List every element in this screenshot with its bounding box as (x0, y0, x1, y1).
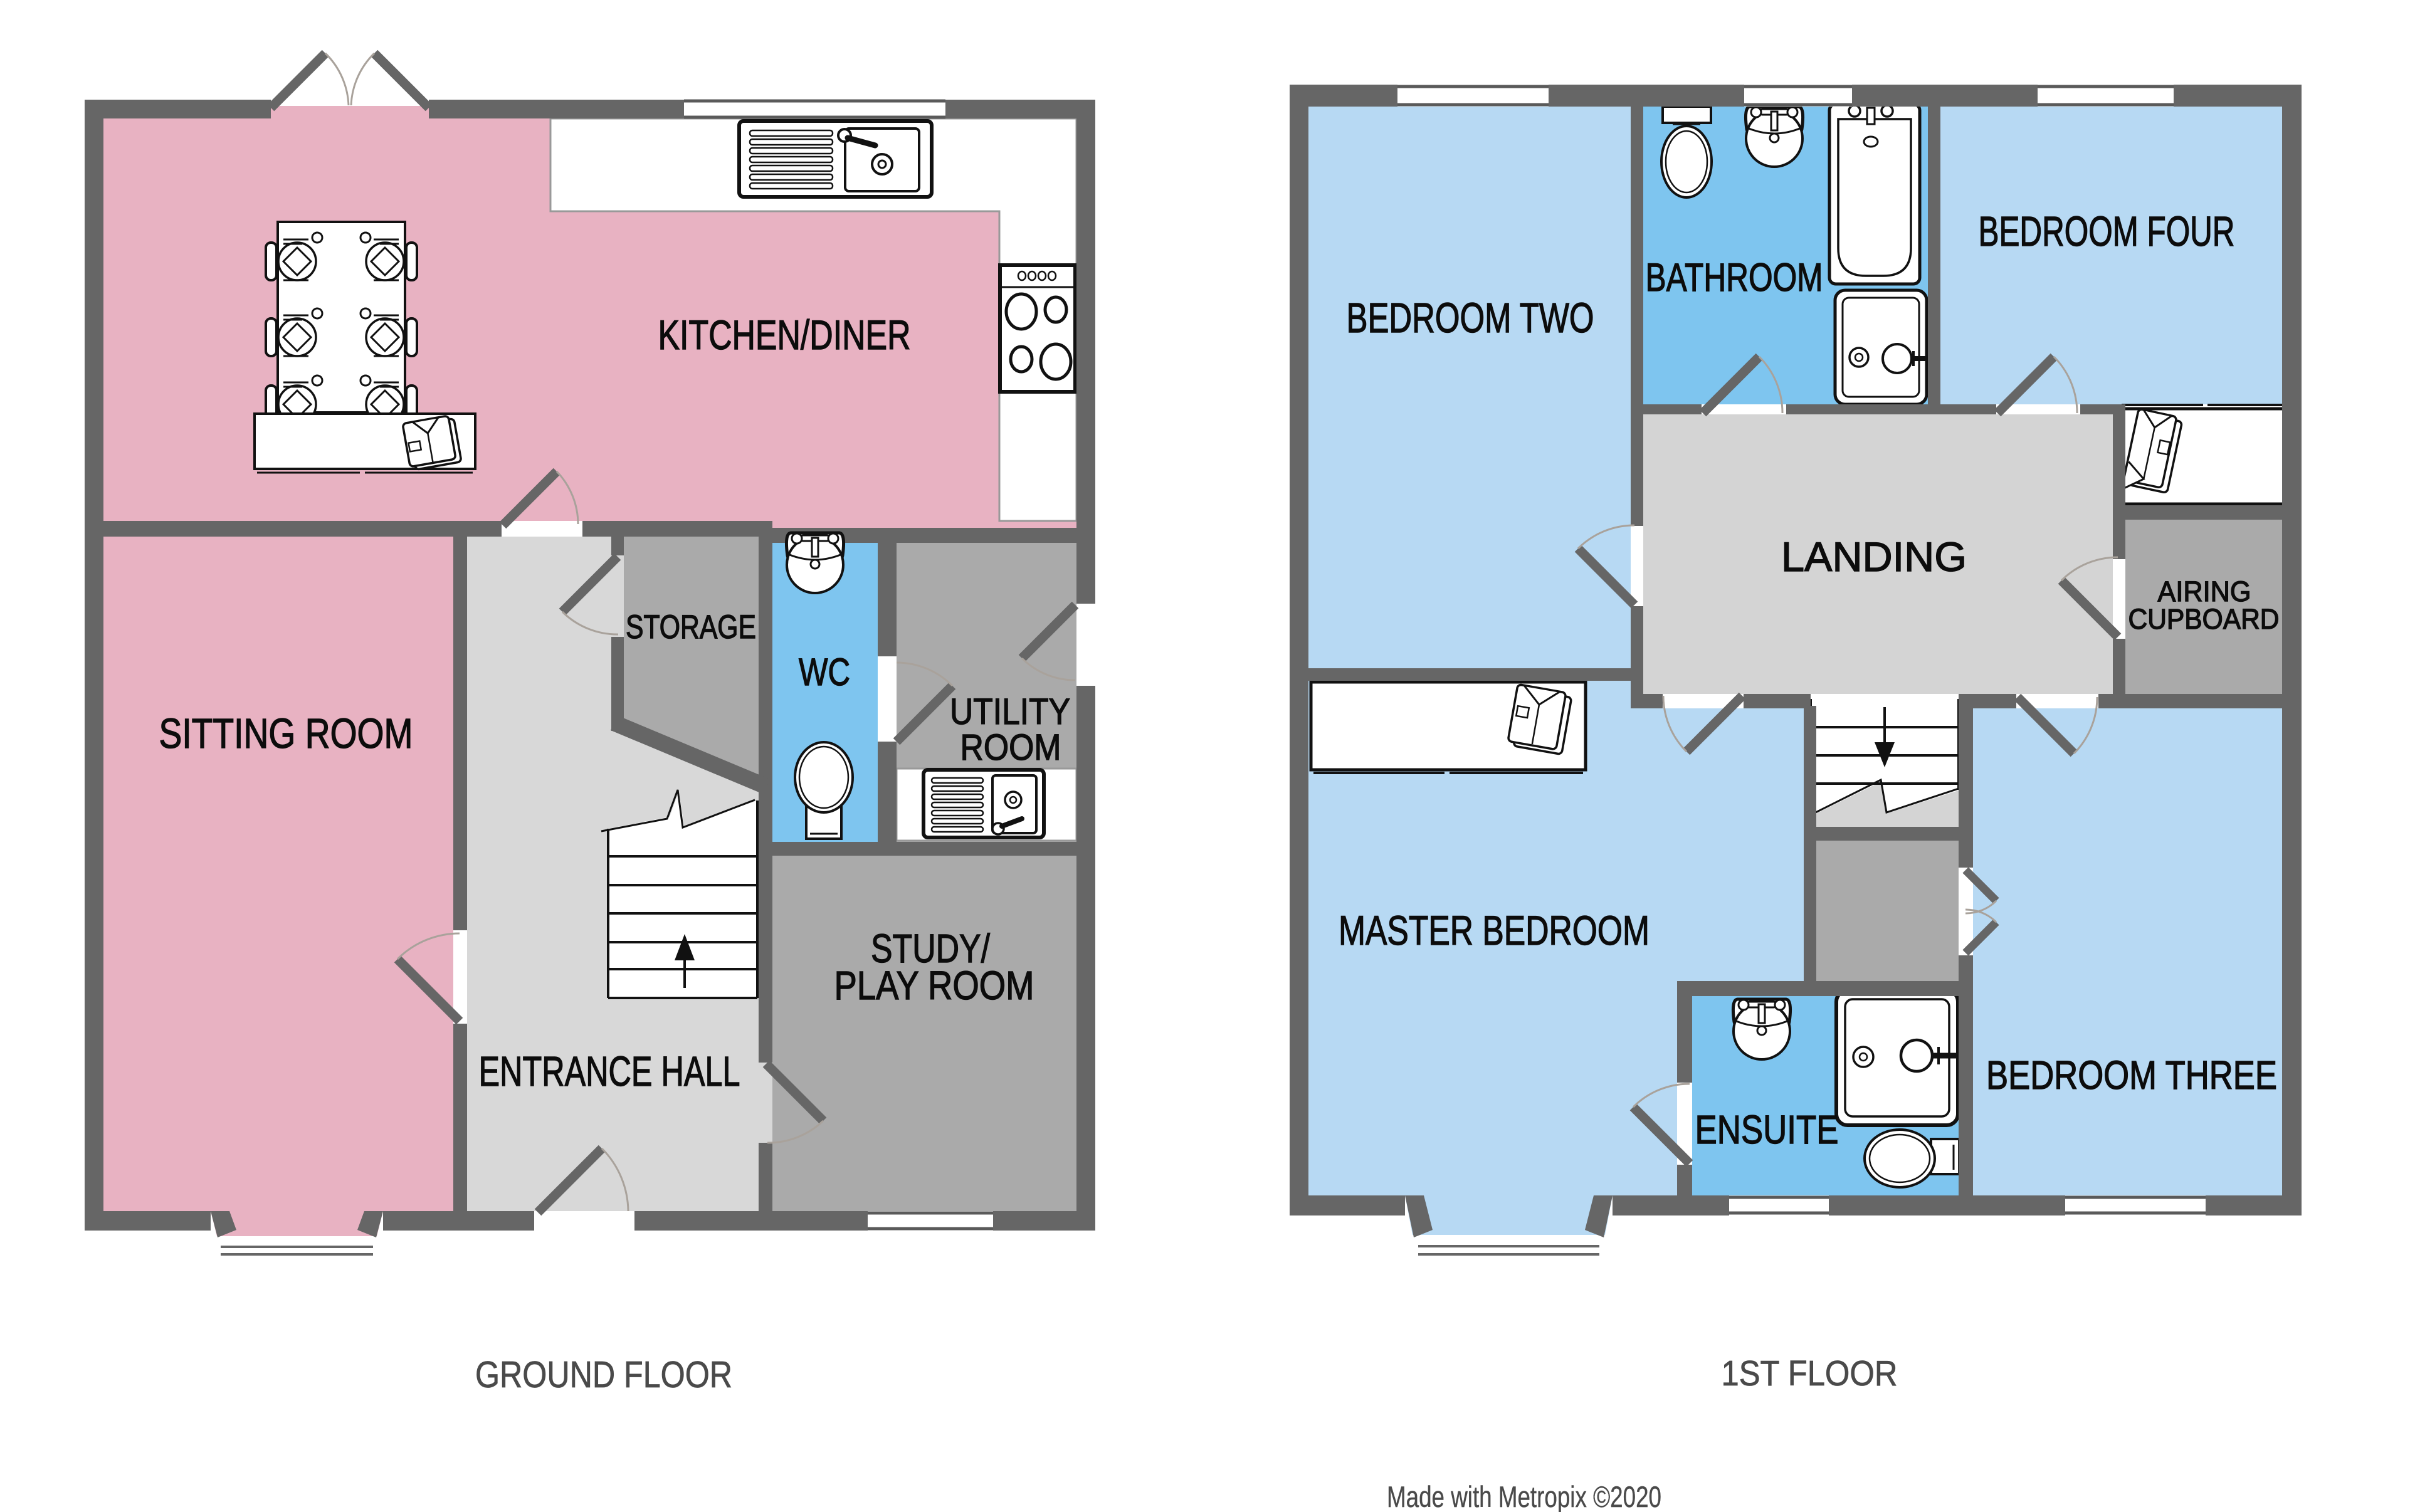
svg-text:BEDROOM TWO: BEDROOM TWO (1347, 295, 1594, 342)
svg-text:BEDROOM FOUR: BEDROOM FOUR (1979, 208, 2235, 255)
svg-text:UTILITY: UTILITY (950, 691, 1070, 732)
svg-text:MASTER BEDROOM: MASTER BEDROOM (1339, 907, 1650, 953)
svg-text:GROUND FLOOR: GROUND FLOOR (475, 1354, 732, 1395)
svg-text:KITCHEN/DINER: KITCHEN/DINER (658, 312, 911, 358)
svg-text:LANDING: LANDING (1781, 533, 1967, 580)
svg-text:BEDROOM THREE: BEDROOM THREE (1986, 1053, 2277, 1098)
svg-text:STORAGE: STORAGE (626, 609, 756, 646)
svg-text:BATHROOM: BATHROOM (1646, 256, 1823, 300)
svg-text:ROOM: ROOM (960, 727, 1061, 768)
svg-text:SITTING ROOM: SITTING ROOM (159, 710, 413, 757)
svg-text:WC: WC (799, 651, 850, 693)
svg-text:ENSUITE: ENSUITE (1695, 1107, 1839, 1152)
svg-text:1ST FLOOR: 1ST FLOOR (1722, 1353, 1898, 1394)
svg-text:Made with Metropix ©2020: Made with Metropix ©2020 (1387, 1480, 1661, 1512)
svg-text:PLAY ROOM: PLAY ROOM (834, 963, 1034, 1008)
svg-text:ENTRANCE HALL: ENTRANCE HALL (479, 1048, 740, 1095)
svg-text:CUPBOARD: CUPBOARD (2128, 603, 2280, 635)
